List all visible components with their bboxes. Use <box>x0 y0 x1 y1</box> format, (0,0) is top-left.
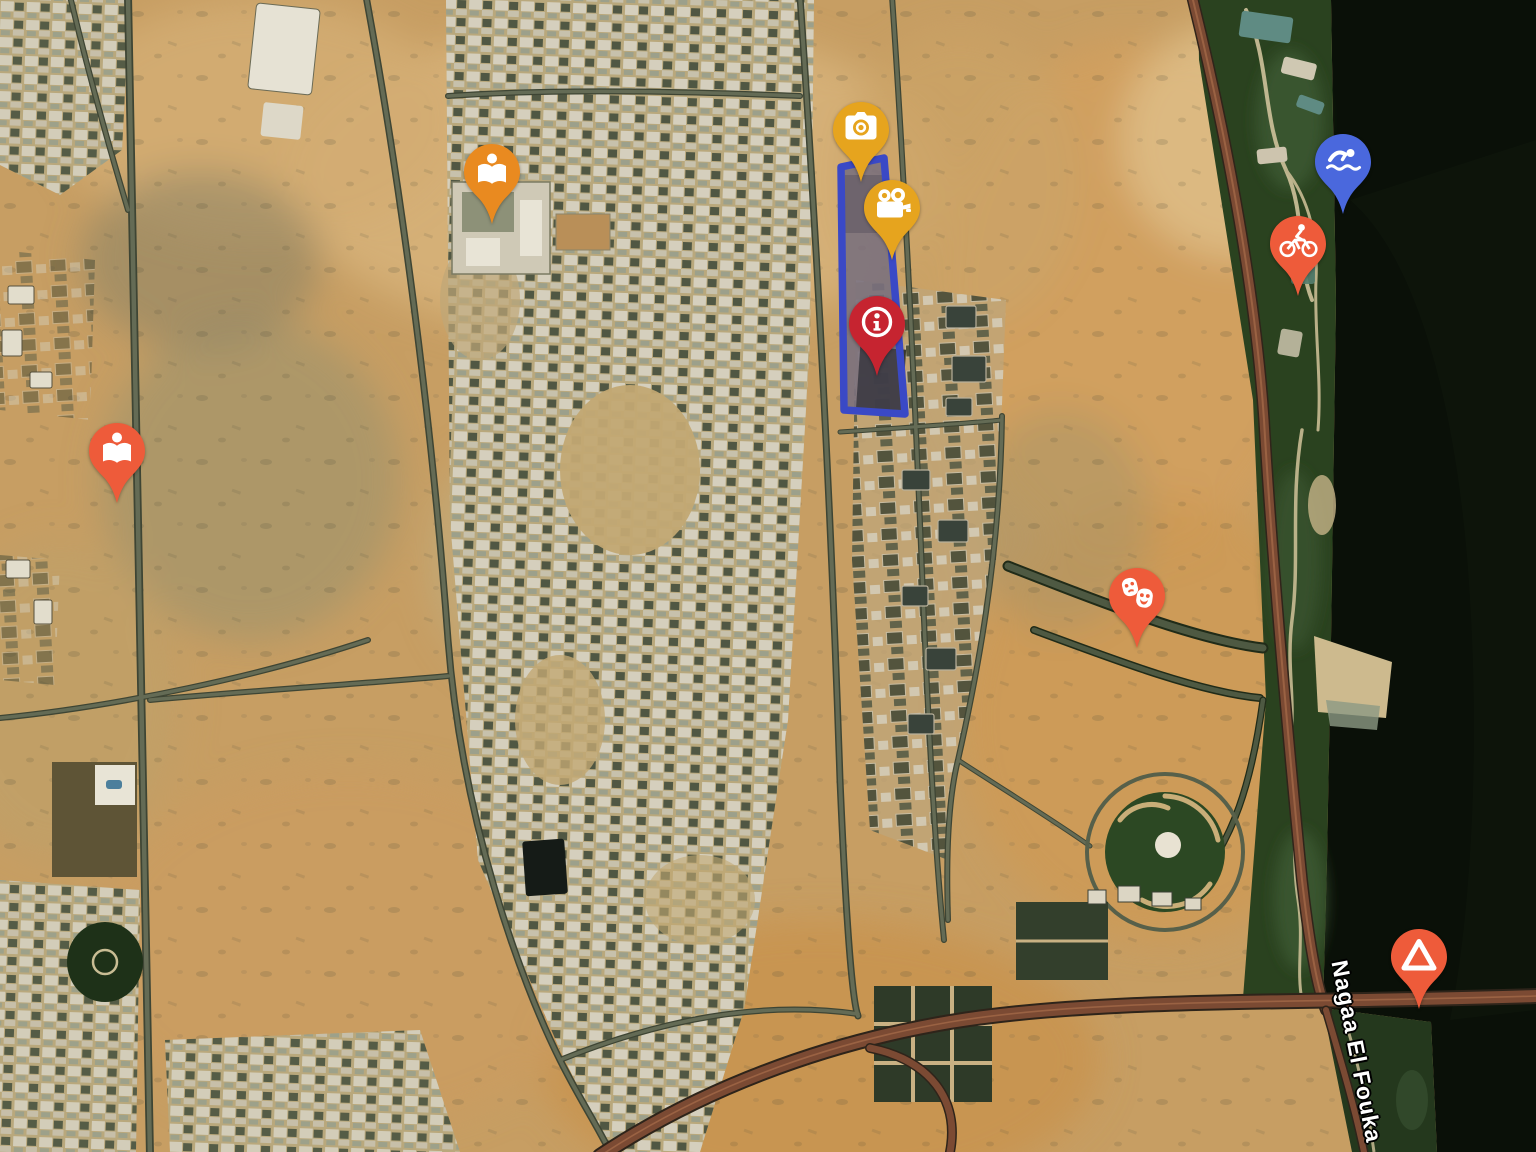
swimming-marker[interactable] <box>1313 132 1373 216</box>
photo-camera-icon <box>846 112 877 140</box>
pin-shape <box>1109 568 1165 648</box>
cycling-marker[interactable] <box>1268 214 1328 298</box>
pin-shape <box>1315 134 1371 214</box>
library-marker-north[interactable] <box>462 142 522 226</box>
camping-marker[interactable] <box>1389 927 1449 1011</box>
map-viewport[interactable]: Nagaa El Fouka <box>0 0 1536 1152</box>
photo-spot-marker[interactable] <box>831 100 891 184</box>
satellite-map-canvas[interactable] <box>0 0 1536 1152</box>
info-marker[interactable] <box>847 294 907 378</box>
video-spot-marker[interactable] <box>862 178 922 262</box>
theater-marker[interactable] <box>1107 566 1167 650</box>
library-marker-west[interactable] <box>87 421 147 505</box>
pin-shape <box>1270 216 1326 296</box>
